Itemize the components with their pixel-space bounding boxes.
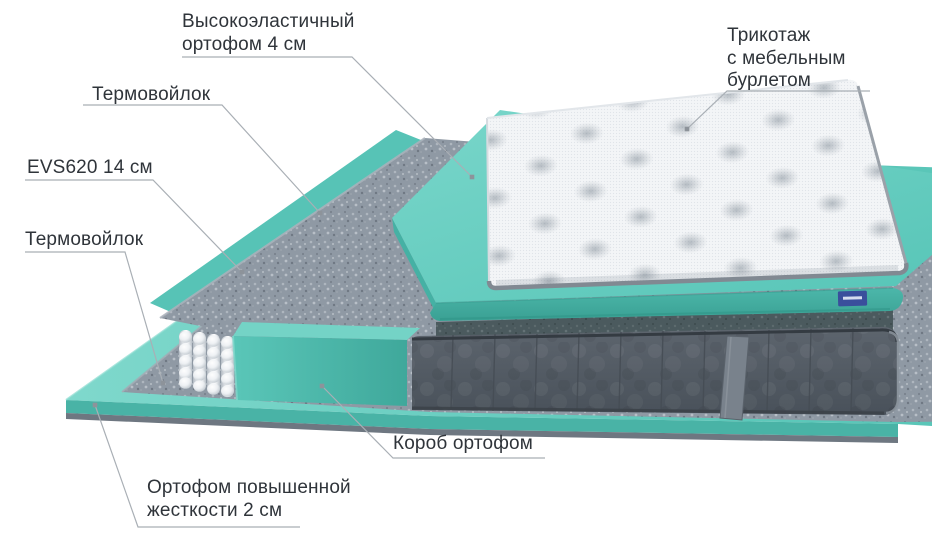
label-foam-top: Высокоэластичный ортофом 4 см [182,11,355,56]
mattress-layers-diagram: Высокоэластичный ортофом 4 см Трикотаж с… [0,0,932,541]
label-springs-evs620: EVS620 14 см [27,157,153,180]
label-thermofelt-lower: Термовойлок [25,229,143,252]
layer-foam-box [233,322,420,406]
label-foam-base: Ортофом повышенной жесткости 2 см [147,477,351,522]
label-foam-box: Короб ортофом [393,433,533,456]
layer-knit-cover [487,80,906,288]
brand-tag [838,291,867,307]
label-thermofelt-upper: Термовойлок [92,84,210,107]
mattress-body [412,327,898,420]
label-knit-cover: Трикотаж с мебельным бурлетом [727,25,846,93]
